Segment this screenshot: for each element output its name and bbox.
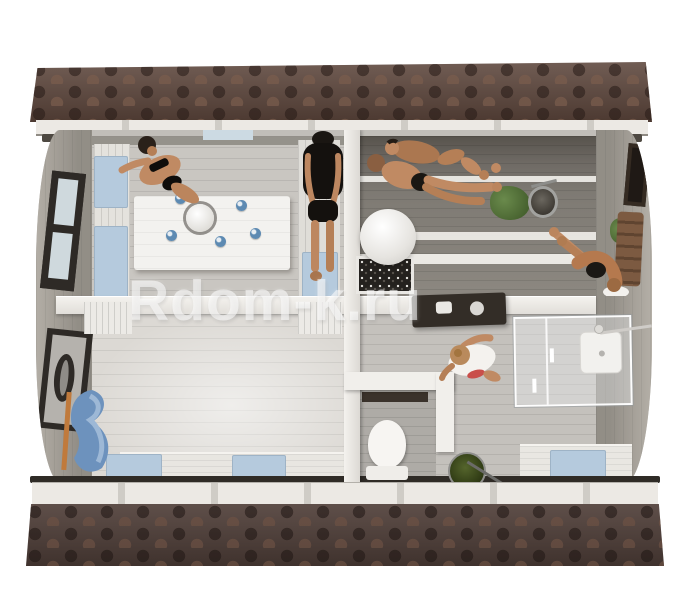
- wall-vanity: [411, 292, 506, 327]
- roof-top-shingles: [30, 62, 652, 122]
- metal-water-bucket: [528, 186, 558, 218]
- top-wall-window: [203, 130, 253, 140]
- vanity-tray: [436, 301, 452, 314]
- toilet: [368, 420, 406, 468]
- shower-door-handle: [550, 348, 554, 362]
- blue-cup: [166, 230, 177, 241]
- white-slat-bench: [84, 302, 132, 334]
- person-man-black-swimsuit: [296, 130, 350, 290]
- blue-cushion: [94, 226, 128, 298]
- blue-cushion: [550, 450, 606, 478]
- blue-bathrobe: [62, 386, 120, 476]
- blue-cup: [250, 228, 261, 239]
- blue-cup: [236, 200, 247, 211]
- sauna-sphere-lamp: [360, 209, 416, 265]
- green-bucket: [448, 452, 486, 482]
- shower-door-handle: [532, 379, 536, 393]
- person-woman-towel: [432, 326, 508, 390]
- toilet-tank: [366, 466, 408, 480]
- toilet-door-lintel: [362, 392, 428, 402]
- blue-cup: [215, 236, 226, 247]
- shower-drain: [599, 350, 605, 356]
- watermark: Rdom-k.ru: [128, 268, 422, 334]
- roof-bottom-shingles: [26, 504, 664, 566]
- person-bending: [544, 222, 634, 296]
- vanity-bowl: [470, 301, 484, 315]
- sauna-house-render: Rdom-k.ru: [0, 0, 690, 610]
- shower-tray: [579, 331, 622, 374]
- window-pane: [48, 232, 73, 280]
- person-two-men-lying: [356, 130, 528, 214]
- roof-bottom-fascia-rafters: [32, 482, 658, 505]
- shower-head: [594, 324, 604, 334]
- window-pane: [54, 178, 79, 226]
- person-woman-bikini: [114, 130, 204, 212]
- glass-panel-edge: [545, 318, 549, 404]
